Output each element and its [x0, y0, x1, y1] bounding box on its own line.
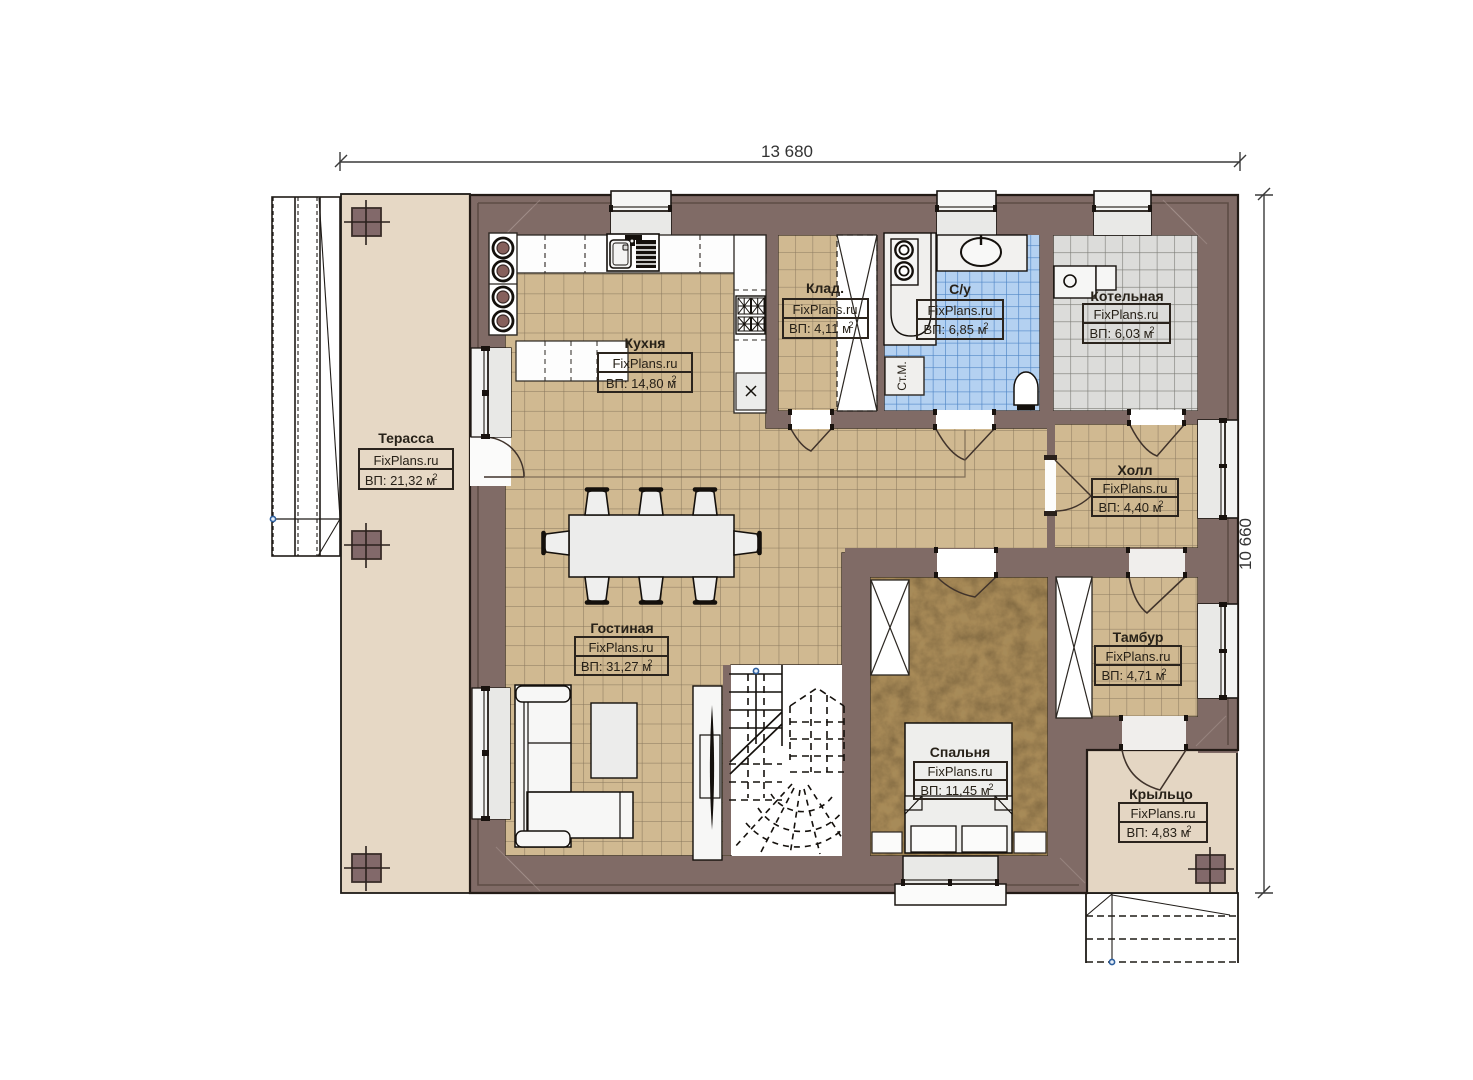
- svg-text:FixPlans.ru: FixPlans.ru: [1093, 307, 1158, 322]
- svg-text:ВП: 6,85 м: ВП: 6,85 м: [923, 322, 986, 337]
- svg-text:Тамбур: Тамбур: [1113, 629, 1164, 645]
- svg-text:2: 2: [671, 374, 676, 384]
- svg-text:ВП: 4,71 м: ВП: 4,71 м: [1101, 668, 1164, 683]
- svg-text:С/у: С/у: [949, 281, 971, 297]
- svg-text:ВП: 6,03 м: ВП: 6,03 м: [1089, 326, 1152, 341]
- svg-text:2: 2: [1149, 325, 1154, 335]
- svg-text:2: 2: [1186, 824, 1191, 834]
- svg-text:FixPlans.ru: FixPlans.ru: [927, 303, 992, 318]
- svg-text:2: 2: [647, 658, 652, 668]
- svg-text:FixPlans.ru: FixPlans.ru: [1105, 649, 1170, 664]
- svg-text:ВП: 4,40 м: ВП: 4,40 м: [1098, 500, 1161, 515]
- svg-text:FixPlans.ru: FixPlans.ru: [588, 640, 653, 655]
- svg-text:2: 2: [848, 320, 853, 330]
- svg-text:FixPlans.ru: FixPlans.ru: [792, 302, 857, 317]
- svg-text:Спальня: Спальня: [930, 744, 990, 760]
- svg-text:ВП: 21,32 м: ВП: 21,32 м: [365, 473, 435, 488]
- svg-text:FixPlans.ru: FixPlans.ru: [1130, 806, 1195, 821]
- svg-text:ВП: 4,83 м: ВП: 4,83 м: [1126, 825, 1189, 840]
- svg-text:Клад.: Клад.: [806, 280, 844, 296]
- svg-text:Гостиная: Гостиная: [590, 620, 653, 636]
- svg-text:2: 2: [432, 472, 437, 482]
- svg-text:Котельная: Котельная: [1090, 288, 1163, 304]
- svg-text:Холл: Холл: [1117, 462, 1152, 478]
- svg-text:13 680: 13 680: [761, 142, 813, 161]
- svg-text:FixPlans.ru: FixPlans.ru: [373, 453, 438, 468]
- svg-text:FixPlans.ru: FixPlans.ru: [1102, 481, 1167, 496]
- svg-text:FixPlans.ru: FixPlans.ru: [612, 356, 677, 371]
- svg-text:Кухня: Кухня: [625, 335, 666, 351]
- svg-text:ВП: 14,80 м: ВП: 14,80 м: [606, 376, 676, 391]
- svg-text:FixPlans.ru: FixPlans.ru: [927, 764, 992, 779]
- svg-text:2: 2: [1161, 667, 1166, 677]
- svg-text:2: 2: [988, 782, 993, 792]
- svg-text:Ст.М.: Ст.М.: [895, 361, 909, 391]
- svg-text:ВП: 11,45 м: ВП: 11,45 м: [920, 783, 989, 798]
- svg-text:2: 2: [1158, 499, 1163, 509]
- svg-text:ВП: 4,11 м: ВП: 4,11 м: [789, 321, 851, 336]
- svg-text:ВП: 31,27 м: ВП: 31,27 м: [581, 659, 651, 674]
- svg-text:2: 2: [983, 321, 988, 331]
- svg-text:Терасса: Терасса: [378, 430, 434, 446]
